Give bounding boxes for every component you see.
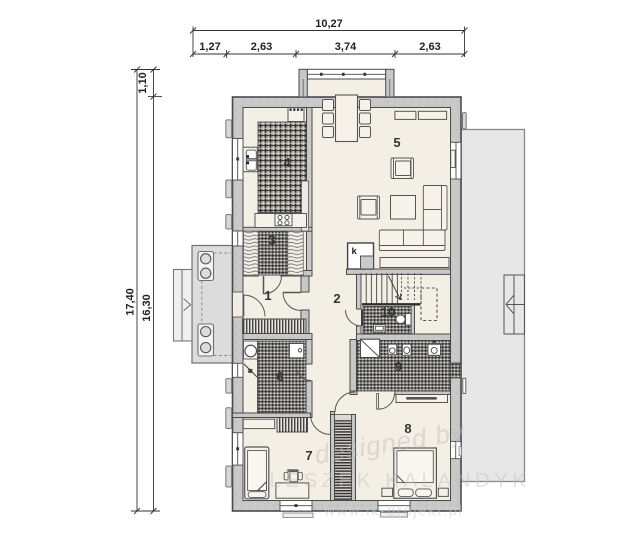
svg-text:7: 7 [305, 448, 312, 463]
svg-text:LESZEK KALANDYK: LESZEK KALANDYK [269, 469, 530, 492]
svg-text:4: 4 [283, 155, 291, 170]
svg-text:1,27: 1,27 [199, 41, 220, 53]
svg-text:10: 10 [381, 305, 395, 320]
svg-text:1: 1 [264, 288, 271, 303]
svg-text:2,63: 2,63 [251, 41, 272, 53]
svg-text:9: 9 [395, 359, 402, 374]
svg-text:17,40: 17,40 [125, 288, 137, 316]
svg-text:3,74: 3,74 [335, 41, 357, 53]
svg-text:2: 2 [333, 291, 340, 306]
svg-text:3: 3 [268, 233, 275, 248]
svg-text:www.lk-projekt.pl: www.lk-projekt.pl [323, 504, 463, 520]
svg-text:k: k [352, 246, 358, 257]
svg-text:16,30: 16,30 [141, 294, 153, 322]
svg-text:1,10: 1,10 [137, 72, 149, 93]
svg-text:6: 6 [276, 369, 283, 384]
svg-text:2,63: 2,63 [419, 41, 440, 53]
svg-text:10,27: 10,27 [315, 18, 343, 30]
svg-text:5: 5 [393, 135, 400, 150]
